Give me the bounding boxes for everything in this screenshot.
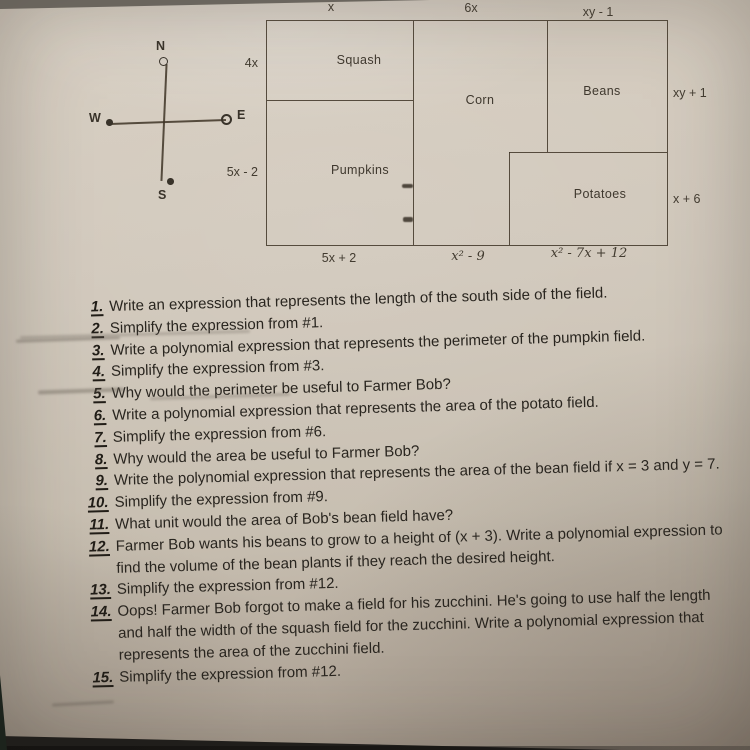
dim-left-pumpkins: 5x - 2 [198,165,258,179]
compass-east-marker [221,114,232,125]
region-squash: Squash [309,53,409,67]
region-beans: Beans [557,84,647,98]
question-number: 12. [76,536,110,559]
compass-north-label: N [156,39,165,53]
field-diagram: N S W E Squash Pumpkins Corn Beans Potat… [0,0,750,290]
dim-top-beans: xy - 1 [556,5,640,19]
divider-squash-pumpkin [267,100,413,101]
dim-bottom-potatoes: x² - 7x + 12 [524,246,654,261]
question-number: 11. [76,514,110,537]
question-number: 7. [74,427,108,450]
compass-east-label: E [237,108,245,122]
dim-left-squash: 4x [214,56,258,70]
question-number: 8. [74,449,108,472]
region-corn: Corn [435,93,525,107]
compass-west-marker [106,119,113,126]
dim-top-corn: 6x [440,1,502,15]
dim-right-potatoes: x + 6 [673,192,700,206]
question-number: 4. [72,361,106,384]
question-list: 1.Write an expression that represents th… [70,279,742,689]
question-number: 14. [78,601,112,624]
question-number: 9. [75,470,109,493]
compass-west-label: W [89,111,101,125]
dim-top-squash: x [300,0,362,14]
region-pumpkins: Pumpkins [305,163,415,177]
compass-south-label: S [158,188,166,202]
question-number: 6. [73,405,107,428]
ink-smudge [403,217,413,222]
divider-potato-top [509,152,667,153]
worksheet-photo: N S W E Squash Pumpkins Corn Beans Potat… [0,0,750,750]
compass-south-marker [167,178,174,185]
field-outline: Squash Pumpkins Corn Beans Potatoes [266,20,668,246]
dim-right-beans: xy + 1 [673,86,707,100]
question-number: 15. [80,667,114,690]
divider-potato-left [509,152,510,245]
question-number: 10. [75,492,109,515]
region-potatoes: Potatoes [545,187,655,201]
ink-smudge [402,184,413,188]
compass-we-line [110,119,226,125]
dim-bottom-pumpkins: 5x + 2 [298,251,380,265]
question-number: 13. [78,579,112,602]
divider-left-column [413,21,414,245]
dim-bottom-corn: x² - 9 [426,249,510,264]
compass-north-marker [159,57,168,66]
question-number: 3. [71,340,105,363]
divider-corn-beans [547,21,548,152]
question-number: 5. [72,383,106,406]
question-number: 1. [70,296,104,319]
